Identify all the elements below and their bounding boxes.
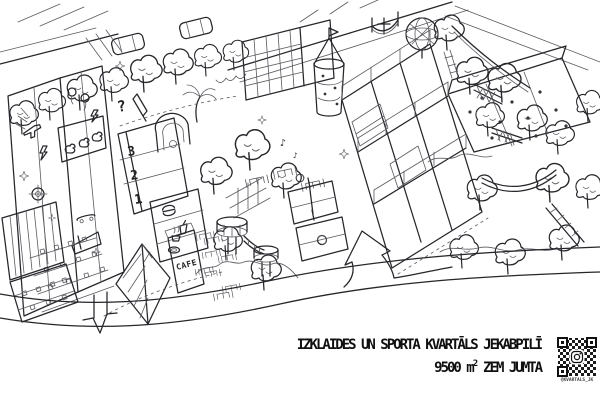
- car-icon: [179, 16, 214, 39]
- ground-line: [428, 154, 492, 162]
- tree-icon: [235, 130, 269, 170]
- area-line: 9500 m2ZEM JUMTA: [297, 355, 541, 378]
- court-markings: [390, 146, 426, 188]
- floor-number-2: 2: [129, 168, 139, 184]
- sparkle-icon: [258, 116, 266, 124]
- sparkle-icon: [19, 171, 29, 181]
- palm-icon: [183, 85, 216, 122]
- zipline-cable: [452, 26, 530, 88]
- target-icon: [29, 185, 47, 203]
- table-chairs-icon: [273, 167, 296, 179]
- caption-block: IZKLAIDES UN SPORTA KVARTĀLS JEKABPILĪ 9…: [297, 336, 541, 378]
- floor-number-3: 3: [126, 144, 136, 160]
- skate-grandstand-zone: [30, 214, 114, 312]
- tree-icon: [488, 63, 521, 102]
- tree-icon: [223, 40, 248, 70]
- pencil-icon: [133, 94, 147, 121]
- globe-sculpture: [378, 18, 438, 58]
- lattice-bridge: [474, 84, 502, 104]
- qr-handle: @KVARTALS_JK: [557, 378, 597, 383]
- qr-code-block: @KVARTALS_JK: [557, 337, 597, 383]
- lightning-icon: [40, 146, 47, 160]
- kids-play-structure: 3 2 1 ?: [116, 85, 216, 214]
- sparkle-icon: [339, 149, 349, 159]
- tree-icon: [576, 175, 600, 208]
- barrel-platform: [254, 246, 278, 276]
- tree-line: [10, 40, 249, 134]
- table-chairs-icon: [301, 179, 324, 191]
- area-value: 9500 m: [434, 360, 473, 376]
- table-chairs-icon: [218, 253, 236, 262]
- burger-icon: [162, 204, 176, 216]
- net-between-trees: [226, 178, 270, 218]
- treetop-rope-park: [195, 130, 301, 301]
- tree-icon: [495, 239, 525, 274]
- court-markings: [352, 104, 388, 146]
- cafe-sign: CAFE: [175, 258, 198, 272]
- tree-icon: [195, 44, 222, 76]
- tree-icon: [546, 121, 574, 154]
- tent-building: [116, 244, 170, 324]
- beach-volleyball-courts: [288, 174, 348, 261]
- lightning-icon: [91, 110, 98, 122]
- climbing-tower: [314, 28, 344, 116]
- instagram-camera-icon: [570, 350, 585, 365]
- music-note-icon: ♪: [280, 138, 286, 149]
- qr-code: [557, 337, 597, 377]
- sparkle-icon: [115, 61, 125, 71]
- tree-icon: [163, 49, 193, 84]
- climbing-wall: [448, 46, 590, 152]
- zipline-forest: [372, 12, 600, 274]
- caged-sports-courts: [342, 30, 488, 274]
- flag-cross-icon: [378, 18, 390, 34]
- lattice-bridge: [492, 128, 522, 145]
- tree-icon: [67, 75, 97, 110]
- project-title: IZKLAIDES UN SPORTA KVARTĀLS JEKABPILĪ: [297, 336, 541, 355]
- laser-gun-icon: [23, 124, 43, 140]
- balloon-icon: [68, 88, 89, 110]
- area-text: ZEM JUMTA: [483, 360, 541, 376]
- big-curved-arrow: [344, 231, 452, 287]
- tree-icon: [467, 175, 497, 210]
- music-note-icon: ♪: [293, 151, 298, 160]
- tree-icon: [536, 163, 569, 202]
- tree-icon: [450, 235, 478, 268]
- sketch-canvas: 3 2 1 ? CAFE: [0, 0, 600, 400]
- tree-icon: [131, 55, 162, 92]
- floor-number-1: 1: [133, 192, 143, 208]
- skateboard-icon: [77, 214, 96, 224]
- question-mark-icon: ?: [116, 97, 128, 116]
- tree-icon: [10, 101, 38, 134]
- terrace-building: [2, 202, 78, 322]
- table-chairs-icon: [195, 266, 213, 275]
- ladder-icon: [444, 50, 458, 78]
- cafe-terrace: ♪ ♪: [245, 138, 324, 191]
- duck-icon: [92, 132, 102, 141]
- area-exponent: 2: [473, 359, 478, 369]
- food-court: [150, 189, 208, 262]
- tree-icon: [434, 15, 464, 50]
- table-chairs-icon: [202, 269, 220, 278]
- dotted-walkways: [104, 96, 238, 316]
- tree-icon: [201, 157, 232, 194]
- table-chairs-icon: [202, 249, 220, 258]
